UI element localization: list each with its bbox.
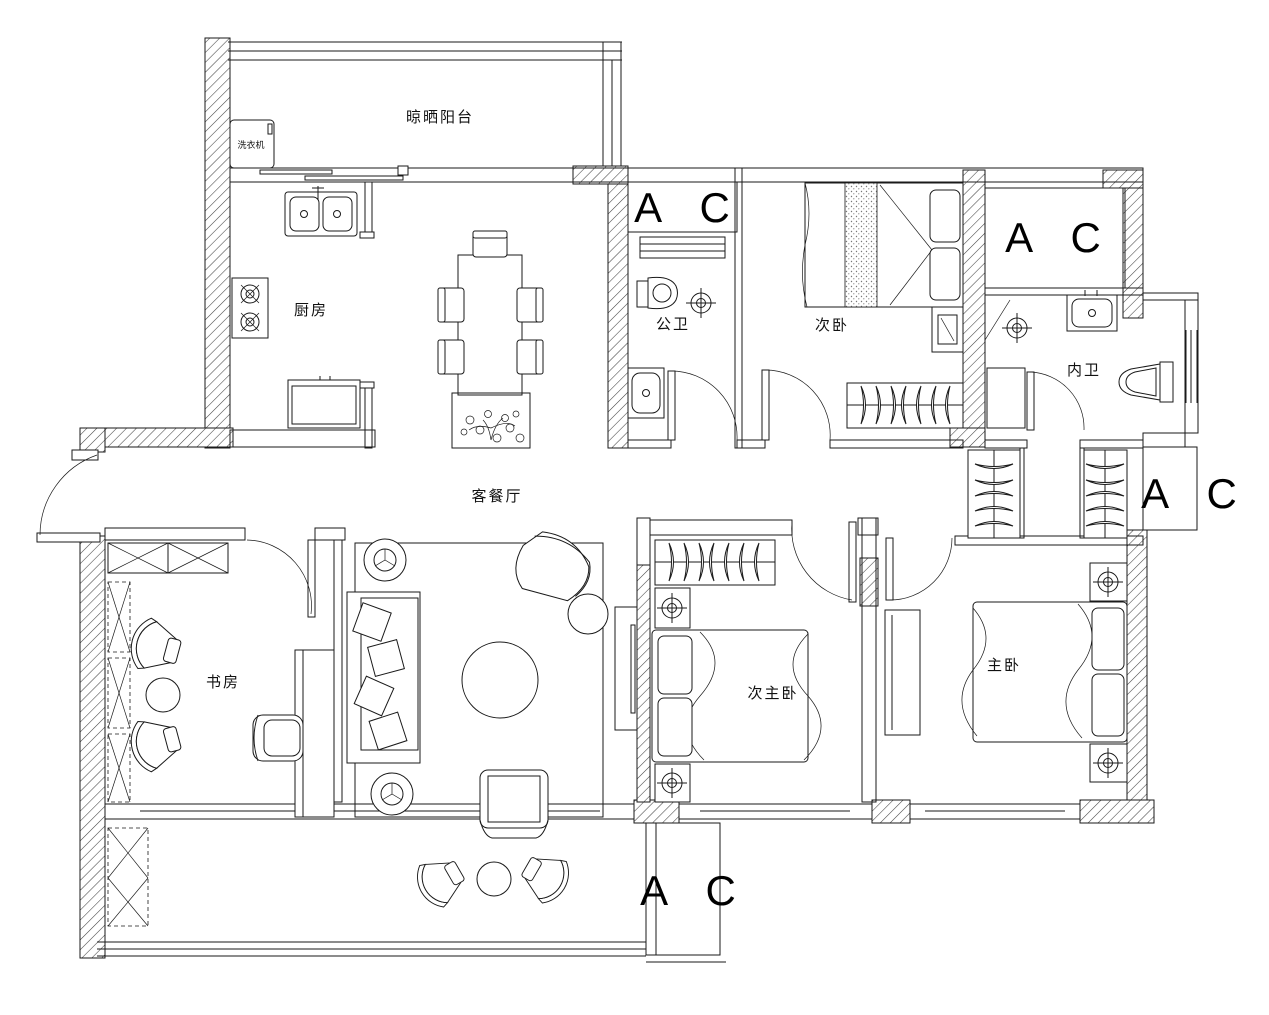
pillow: [1092, 608, 1124, 670]
junior-master-bedroom-label: 次主卧: [747, 685, 798, 702]
nightstand-master-bottom: [1090, 744, 1127, 782]
wall-ensuite-ne: [1143, 293, 1198, 300]
wall-east-upper: [1123, 188, 1143, 318]
wall-master-east: [1127, 530, 1147, 808]
room-junior-master-bedroom: 次主卧: [652, 540, 821, 802]
wall-tv-upper: [637, 518, 650, 565]
kitchen-sink: [285, 186, 357, 236]
study-door: [247, 540, 315, 617]
wall-study-east: [334, 540, 342, 802]
washing-machine-label: 洗衣机: [237, 139, 264, 150]
sliding-door-panel: [305, 176, 403, 180]
wall-stub-hall-north: [950, 428, 985, 447]
wardrobe-jrmaster: [655, 540, 775, 585]
pillow: [930, 190, 960, 242]
drying-balcony-label: 晾晒阳台: [406, 109, 474, 126]
kitchen-cabinet: [288, 376, 360, 428]
ensuite-sink: [1067, 290, 1117, 331]
side-table-bottom: [371, 773, 413, 815]
wall-corridor-n4: [985, 440, 1027, 448]
wall-closet-div1: [1020, 448, 1024, 538]
jrmaster-door: [792, 522, 856, 602]
tv-cabinet: [615, 607, 637, 730]
wardrobe-bedroom2: [847, 383, 963, 428]
hall-wardrobes: [968, 450, 1127, 538]
master-door: [886, 538, 952, 600]
hall-wardrobe-2: [1084, 450, 1127, 538]
ac-label-right: A C: [1141, 470, 1251, 517]
entry-door: [37, 450, 100, 542]
wall-stub-master-se: [1080, 800, 1154, 823]
wall-corridor-n3: [830, 440, 963, 448]
wall-bedroom2-east: [963, 170, 985, 428]
wall-kitchen-south: [230, 430, 375, 447]
nightstand-master-top: [1090, 563, 1127, 601]
toilet: [637, 277, 678, 308]
kitchen-opening-jamb-bottom: [360, 382, 374, 388]
pillow: [1092, 674, 1124, 736]
living-dining-label: 客餐厅: [471, 488, 522, 505]
wall-jrmaster-north: [650, 520, 792, 535]
wall-kitchen-east-lower: [365, 385, 372, 448]
wall-nw-living: [97, 428, 233, 447]
pillow: [658, 698, 692, 756]
side-table-top: [364, 539, 406, 581]
plant: [452, 393, 530, 448]
bed-runner: [845, 183, 877, 307]
wall-stub-ne: [1103, 170, 1143, 188]
ensuite-toilet: [1119, 362, 1173, 402]
floor-plan-sheet: 洗衣机 晾晒阳台 厨房: [0, 0, 1269, 1015]
wall-corridor-n2: [737, 440, 765, 448]
wall-corridor-ne: [1143, 433, 1185, 447]
dining-chair: [438, 288, 464, 322]
window-master-south: [910, 804, 1080, 819]
floor-drain-icon: [686, 288, 716, 318]
coffee-table: [462, 642, 538, 718]
ottoman: [568, 594, 608, 634]
wall-stub-master-sw: [872, 800, 910, 823]
study-lounge-chair-2: [126, 712, 186, 775]
wall-study-north-e: [315, 528, 345, 540]
room-bottom-balcony: [108, 828, 576, 926]
room-kitchen: 厨房: [232, 186, 360, 428]
dining-chair: [517, 340, 543, 374]
public-bathroom-label: 公卫: [656, 316, 690, 333]
room-drying-balcony: 洗衣机 晾晒阳台: [230, 109, 474, 168]
balcony-door-jamb: [398, 166, 408, 175]
ac-label-bottom: A C: [640, 867, 750, 914]
window-balcony-top: [228, 42, 622, 60]
ensuite-cabinet: [987, 368, 1025, 428]
nightstand2: [932, 307, 963, 352]
balcony-chair-left: [410, 849, 472, 912]
ac-label-topright: A C: [1005, 214, 1115, 261]
pillow: [658, 636, 692, 694]
wall-hall-stub: [858, 518, 878, 535]
armchair: [480, 770, 548, 838]
dining-chair: [517, 288, 543, 322]
wall-kitchen-east-upper: [365, 182, 372, 235]
wall-top-main: [628, 168, 1143, 182]
window-ensuite-east: [1186, 330, 1197, 403]
study-label: 书房: [206, 674, 240, 691]
pillow: [930, 248, 960, 300]
sofa: [347, 592, 420, 763]
wall-west-entry-top: [80, 428, 105, 452]
nightstand-jr-top: [655, 588, 690, 628]
wall-corridor-n5: [1080, 440, 1143, 448]
study-top-cabinet: [108, 543, 228, 573]
study-desk-chair: [253, 715, 303, 761]
tv: [631, 625, 635, 713]
room-living-dining: 客餐厅: [347, 488, 637, 838]
hall-wardrobe-1: [968, 450, 1020, 538]
secondary-bedroom-label: 次卧: [815, 317, 849, 334]
balcony-cabinet: [108, 828, 148, 926]
wall-stub-jrmaster-sw: [634, 800, 679, 823]
master-dresser: [885, 610, 920, 735]
nightstand-jr-bottom: [655, 764, 690, 802]
ensuite-bathroom-label: 内卫: [1067, 362, 1101, 379]
wall-west-lower: [80, 536, 105, 958]
room-master-bedroom: 主卧: [885, 563, 1127, 782]
wall-west-upper: [205, 38, 230, 448]
bed2: [802, 183, 963, 307]
room-secondary-bedroom: 次卧: [802, 183, 963, 428]
wall-dining-east: [608, 184, 628, 448]
window-balcony-right: [603, 42, 621, 166]
dining-chair: [438, 340, 464, 374]
wall-ensuite-north: [985, 288, 1143, 295]
wall-closet-div2: [1080, 448, 1084, 538]
vent-window-pubbath: [640, 237, 725, 258]
wall-study-north-w: [105, 528, 245, 540]
shower-divider: [985, 300, 1010, 340]
kitchen-stove: [232, 278, 268, 338]
sliding-door-panel: [260, 170, 332, 174]
dining-chair: [473, 231, 507, 257]
floor-plan-drawing: 洗衣机 晾晒阳台 厨房: [0, 0, 1269, 1015]
pubbath-door: [668, 371, 737, 440]
window-jrmaster-south: [679, 804, 872, 819]
balcony-chair-right: [514, 845, 576, 908]
study-shelf-column: [108, 582, 130, 802]
balcony-table: [477, 862, 511, 896]
wall-corridor-n1: [628, 440, 671, 448]
dining-table: [458, 255, 522, 395]
wall-stub-balcony-se: [573, 166, 628, 184]
window-balcony-bottom: [97, 942, 646, 956]
bathroom-sink: [628, 368, 664, 418]
master-bedroom-label: 主卧: [987, 657, 1021, 674]
study-lounge-chair-1: [126, 615, 186, 678]
study-round-table: [146, 678, 180, 712]
wall-bedrooms-mid-stub: [860, 558, 878, 606]
wall-tv: [637, 565, 650, 802]
ac-label-top: A C: [634, 184, 744, 231]
kitchen-label: 厨房: [294, 302, 328, 319]
bedroom2-door: [762, 370, 830, 440]
kitchen-opening-jamb-top: [360, 232, 374, 238]
room-study: 书房: [108, 543, 334, 817]
dining-set: [438, 231, 543, 448]
floor-drain-icon: [1002, 313, 1032, 343]
